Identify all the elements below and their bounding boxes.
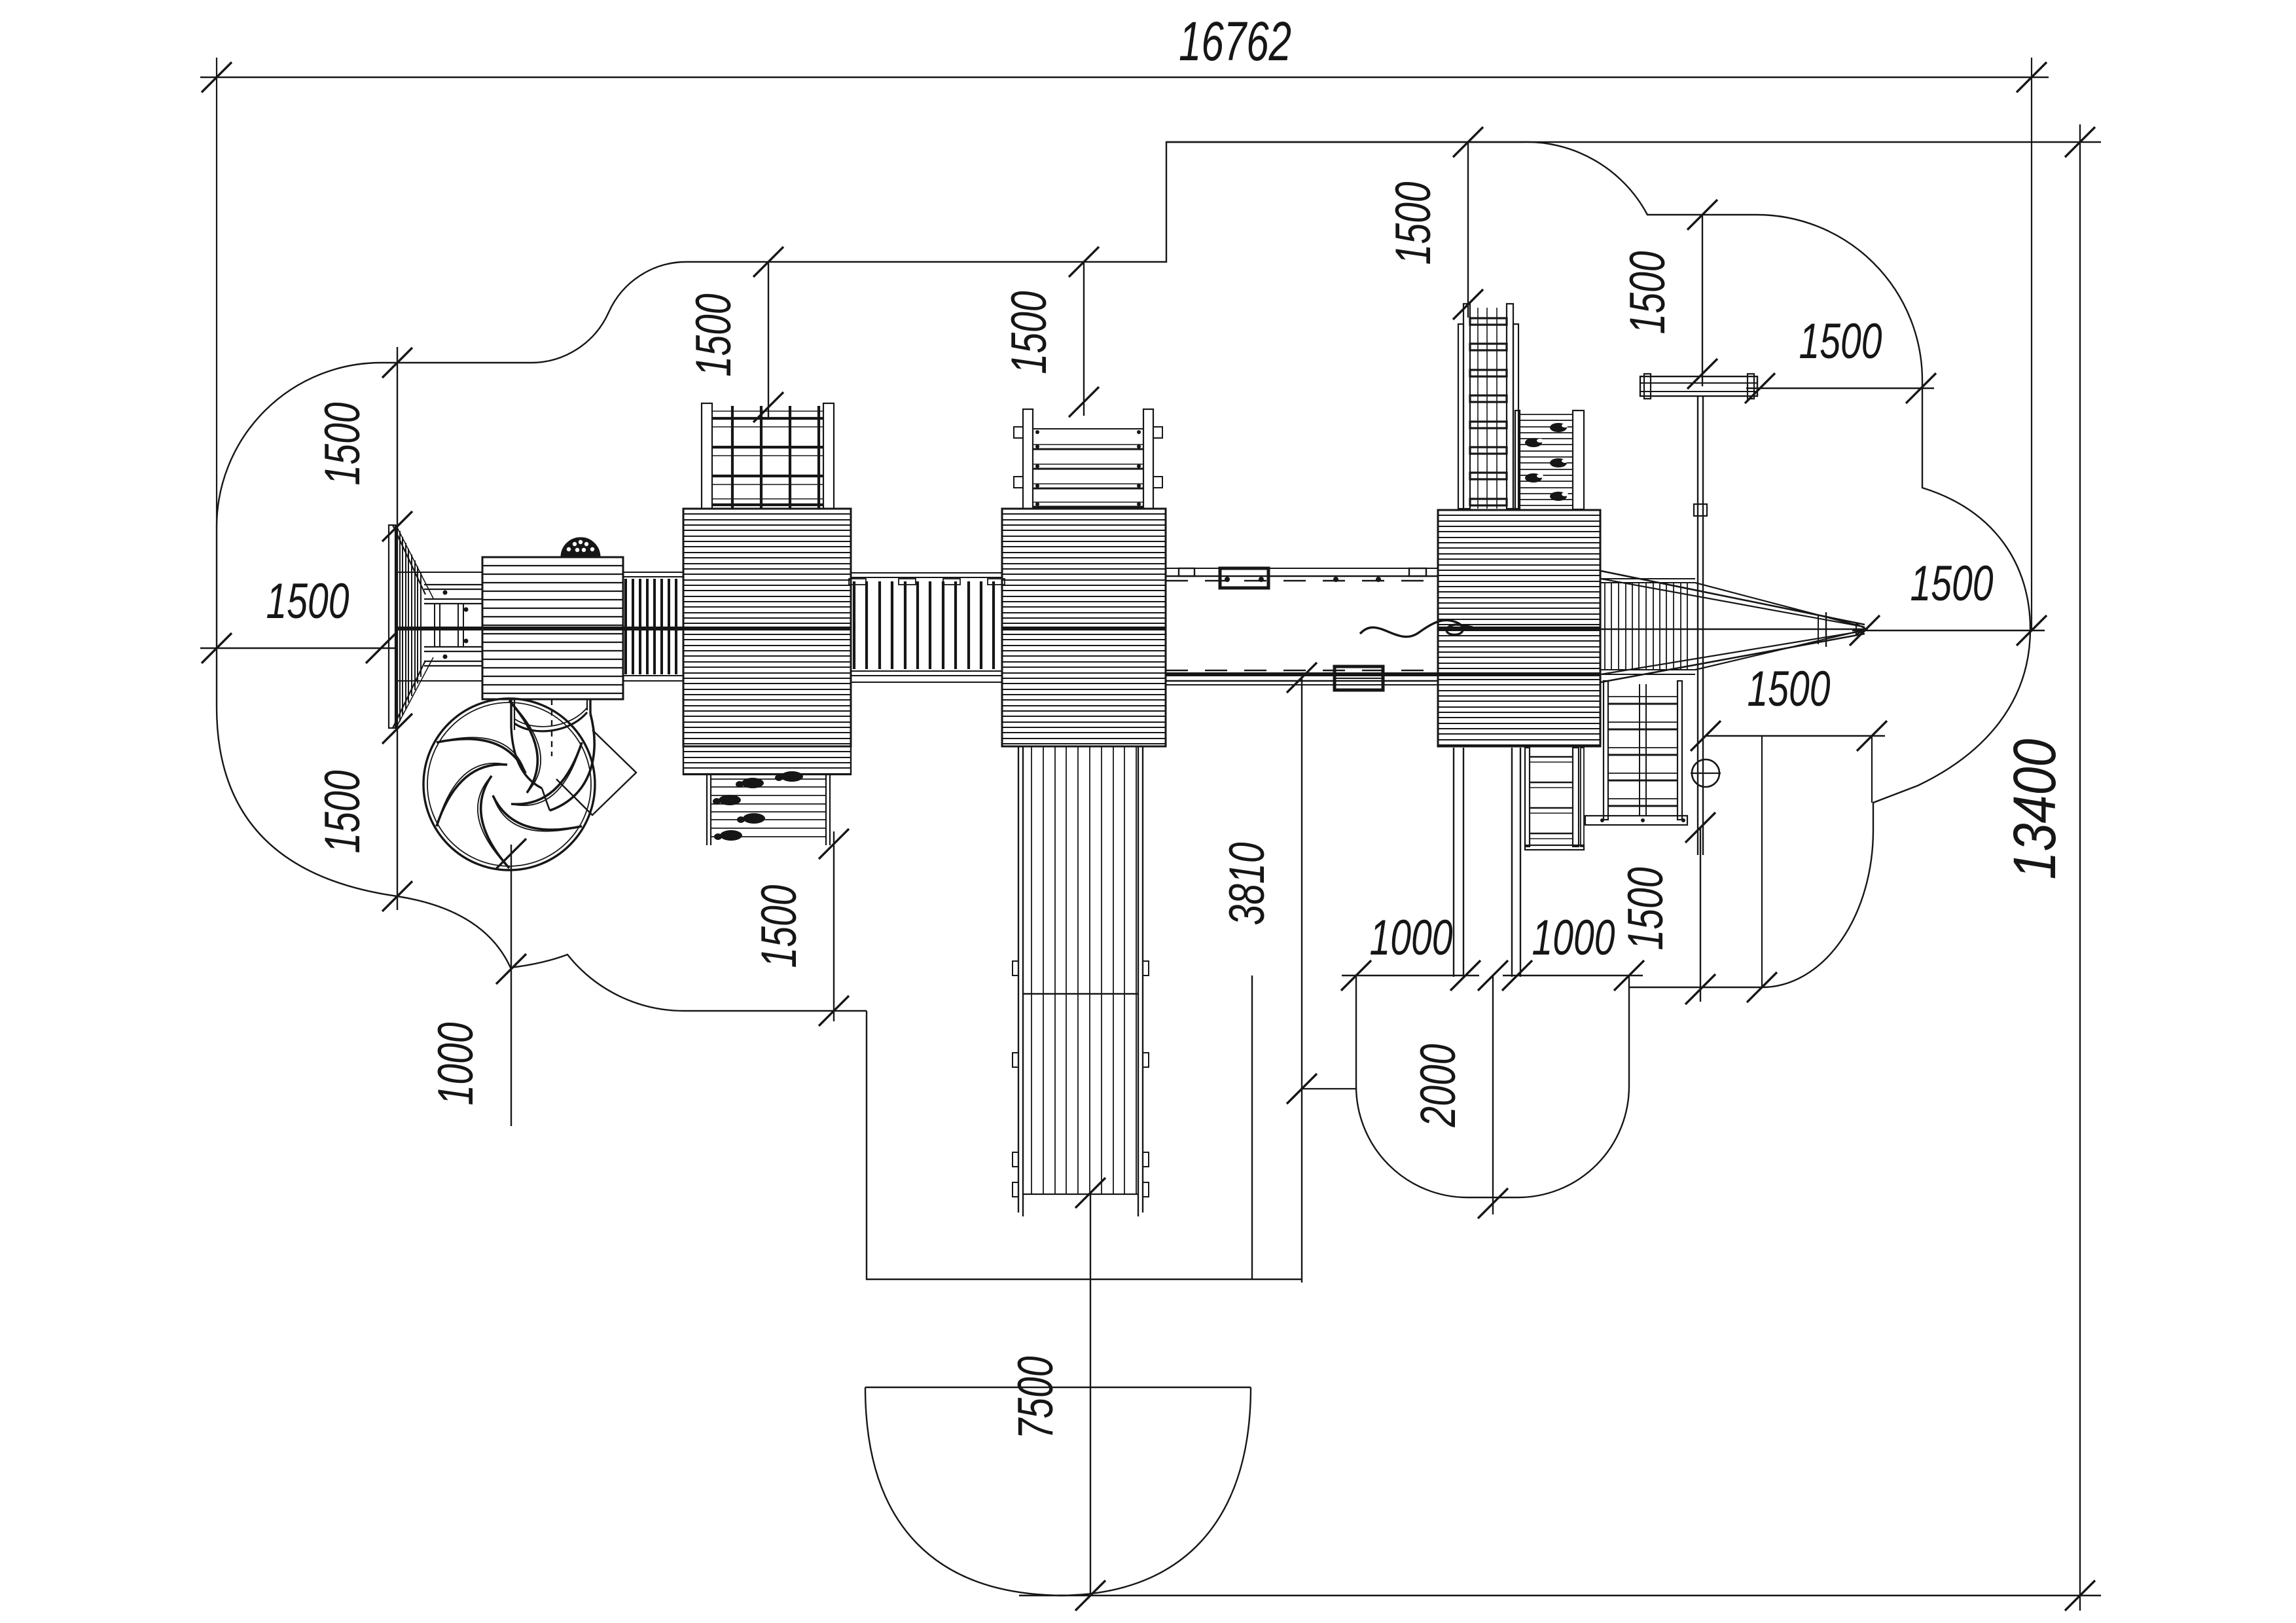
svg-text:1500: 1500 bbox=[1910, 556, 1994, 611]
svg-text:1500: 1500 bbox=[686, 294, 742, 377]
svg-text:1500: 1500 bbox=[751, 885, 807, 968]
svg-text:1500: 1500 bbox=[1799, 314, 1882, 369]
svg-text:1000: 1000 bbox=[1532, 910, 1615, 966]
svg-text:1500: 1500 bbox=[315, 403, 370, 486]
svg-text:13400: 13400 bbox=[2001, 739, 2068, 880]
svg-text:1500: 1500 bbox=[1748, 661, 1831, 717]
svg-text:1000: 1000 bbox=[428, 1023, 484, 1106]
svg-text:1500: 1500 bbox=[1001, 291, 1057, 374]
svg-text:1500: 1500 bbox=[1618, 867, 1674, 951]
svg-text:1500: 1500 bbox=[1386, 182, 1441, 265]
svg-text:7500: 7500 bbox=[1008, 1357, 1064, 1440]
svg-text:3810: 3810 bbox=[1219, 843, 1275, 926]
svg-text:16762: 16762 bbox=[1179, 10, 1291, 72]
svg-text:1500: 1500 bbox=[315, 771, 370, 854]
svg-text:1000: 1000 bbox=[1370, 910, 1453, 966]
svg-text:1500: 1500 bbox=[266, 574, 350, 629]
svg-text:1500: 1500 bbox=[1620, 251, 1676, 335]
svg-text:2000: 2000 bbox=[1410, 1044, 1466, 1128]
